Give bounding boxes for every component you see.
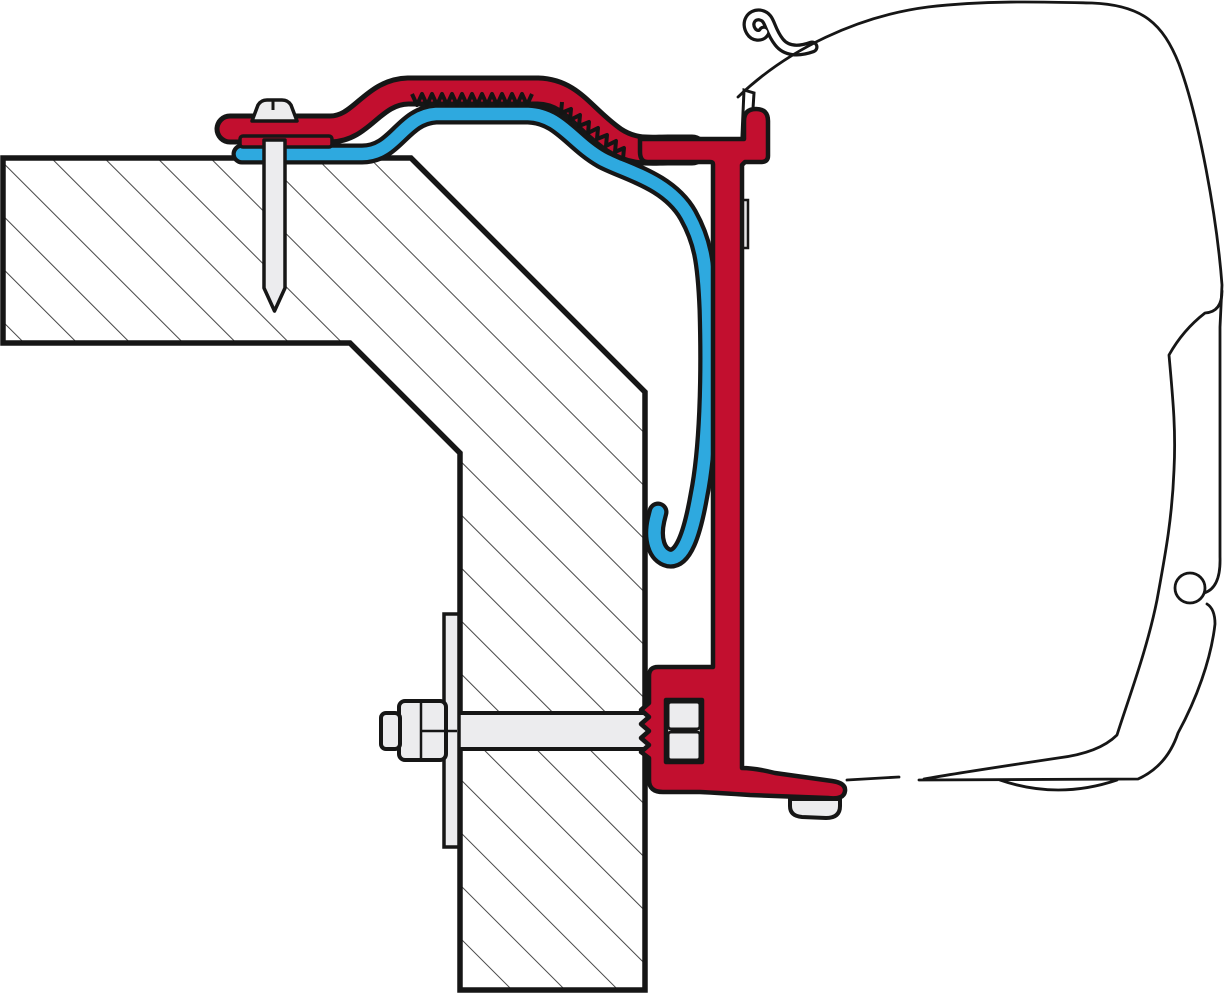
clamp-spacer-blocks: [668, 702, 700, 760]
case-inner-line: [924, 291, 1222, 779]
awning-adapter-cross-section: [0, 0, 1227, 1000]
wall-cross-section: [3, 158, 645, 990]
adapter-bracket-body: [640, 109, 845, 798]
diagram-canvas: [0, 0, 1227, 1000]
clamp-spacer-upper: [668, 702, 700, 729]
awning-case-outline: [738, 2, 1222, 790]
case-lower-outer-line: [919, 604, 1215, 780]
case-knuckle-icon: [1175, 573, 1205, 603]
bolt-end-cap: [381, 713, 400, 749]
case-foot-bump: [1000, 780, 1117, 790]
clamp-spacer-lower: [668, 732, 700, 760]
case-bottom-seam-line: [847, 777, 899, 780]
case-outer-shell: [738, 2, 1222, 593]
foot-screw-head: [790, 799, 840, 818]
top-screw-shaft: [264, 140, 285, 311]
bolt-shaft: [450, 713, 650, 749]
